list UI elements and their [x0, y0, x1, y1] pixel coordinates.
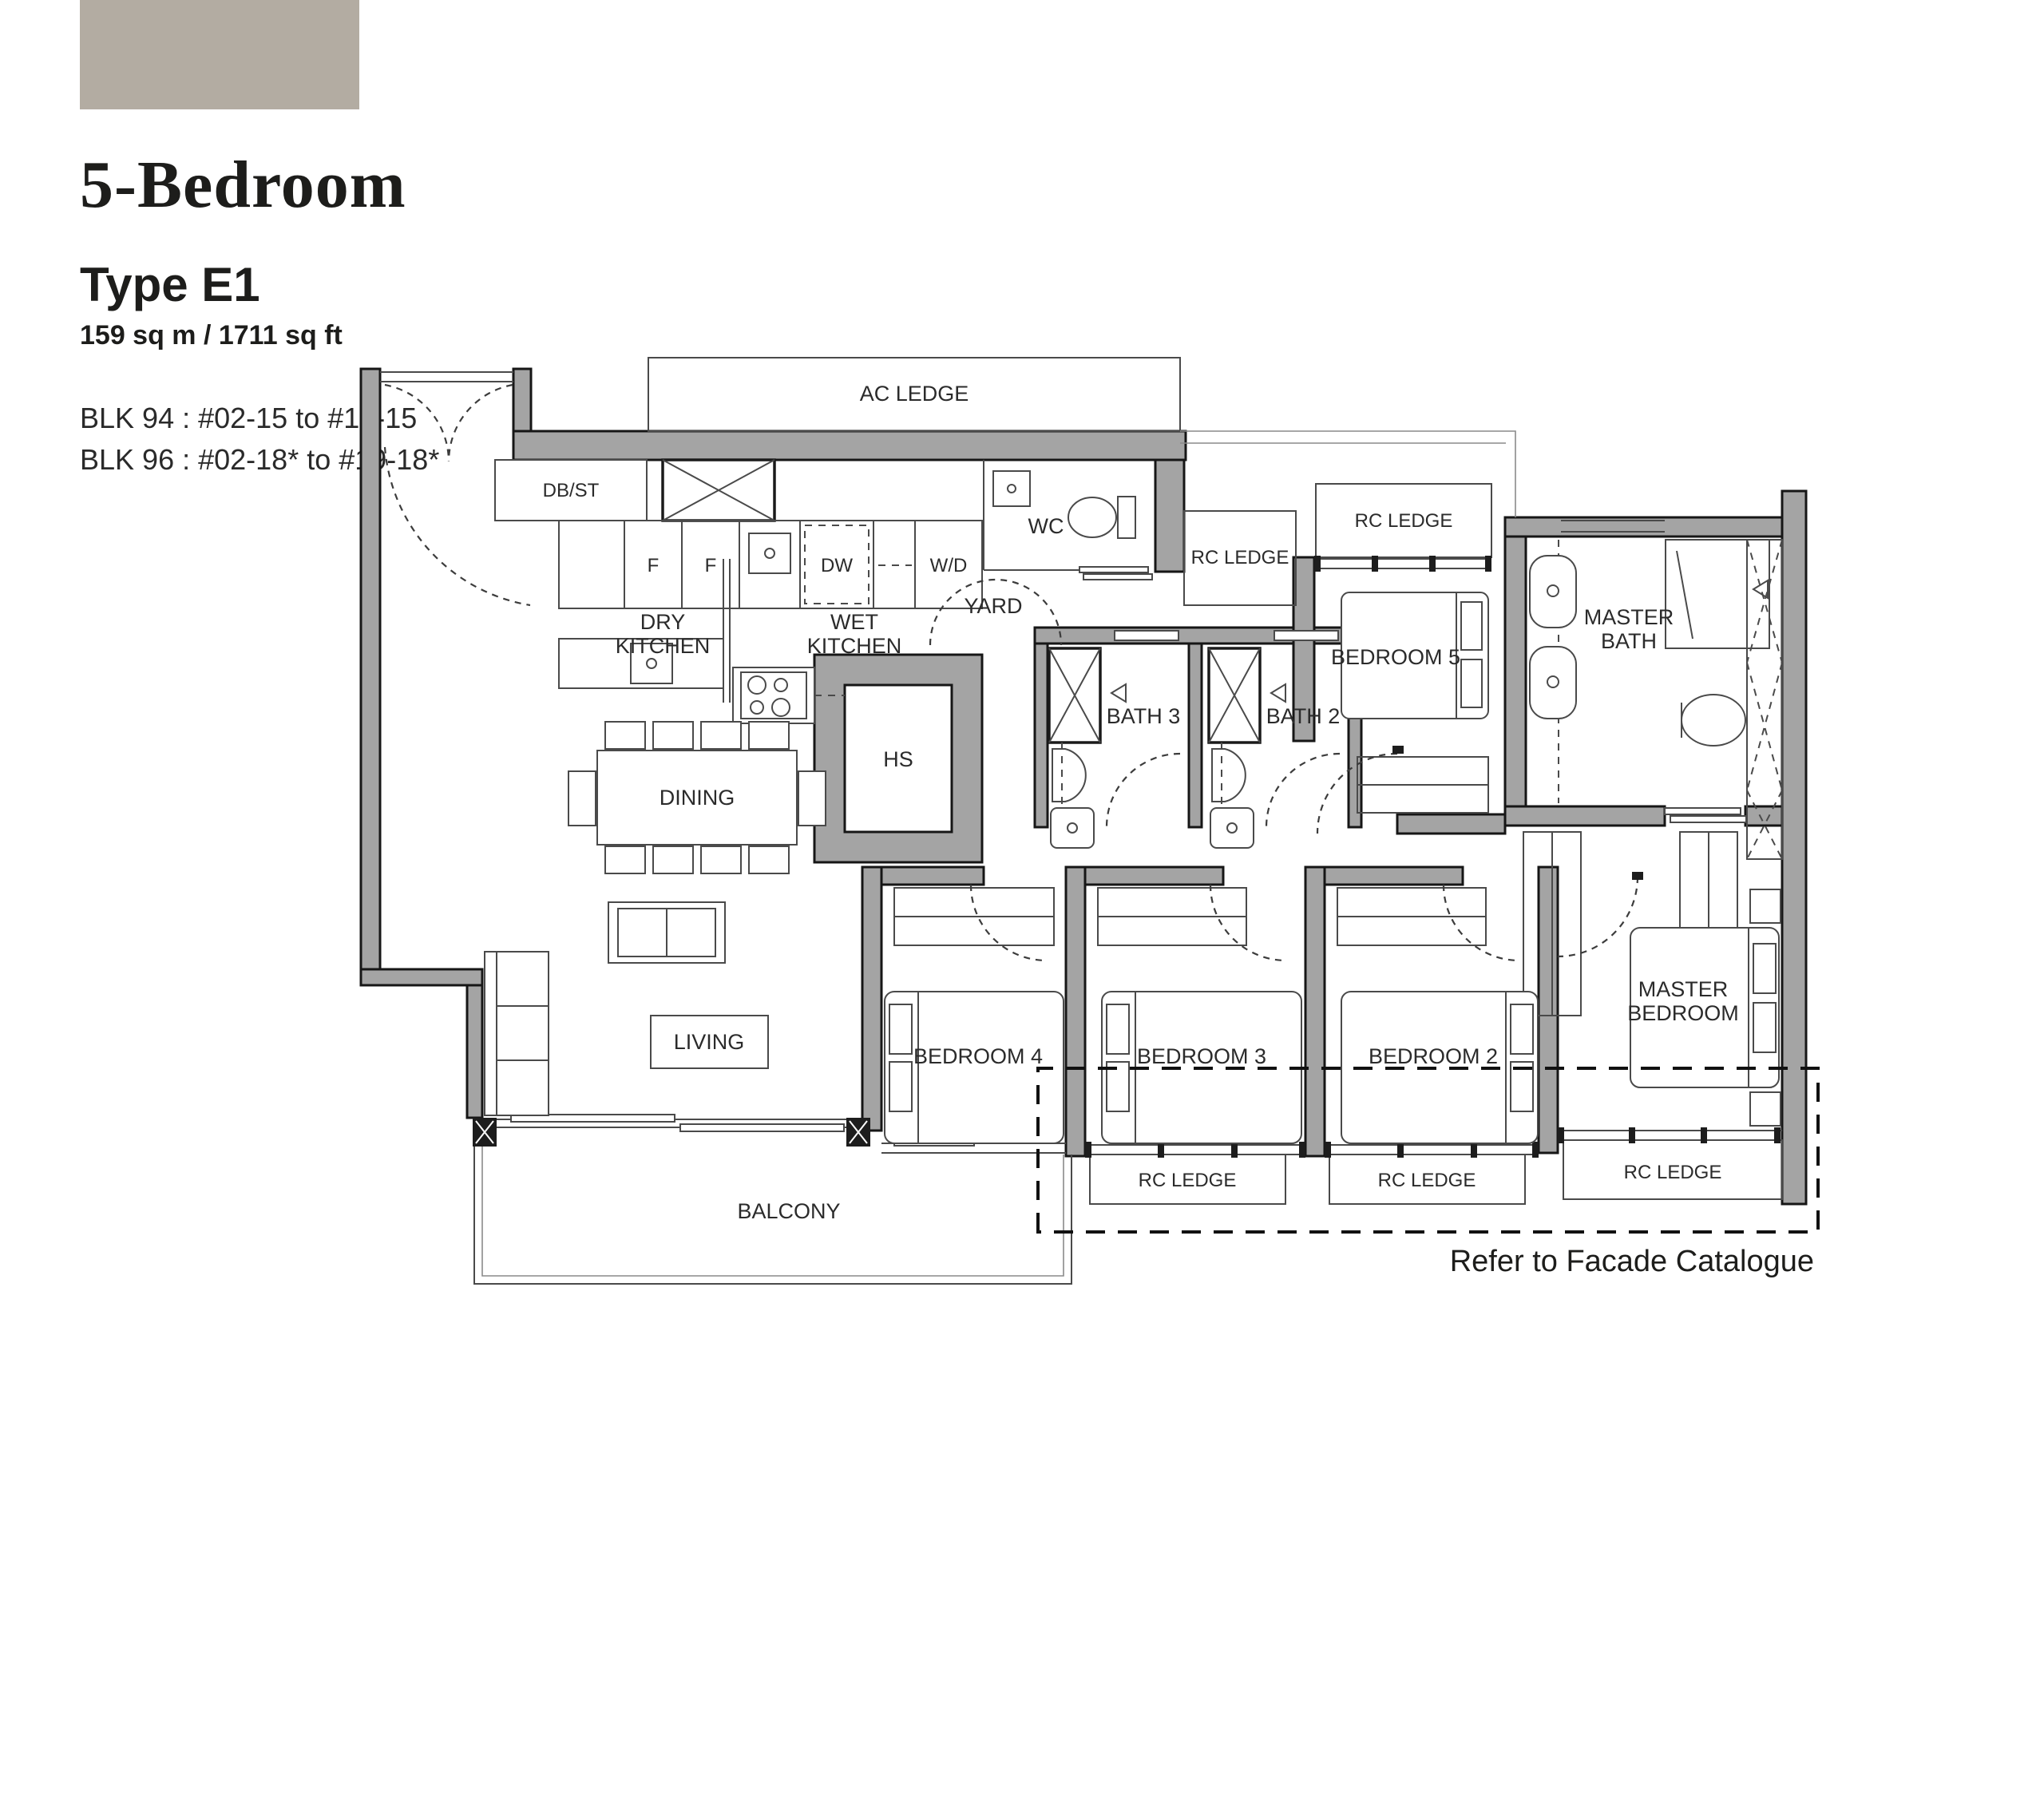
- label-ac-ledge: AC LEDGE: [860, 382, 969, 406]
- label-rc-ledge-wc: RC LEDGE: [1191, 547, 1289, 568]
- label-rc-ledge-master: RC LEDGE: [1624, 1162, 1722, 1183]
- label-dry-kitchen-2: KITCHEN: [616, 634, 711, 658]
- label-balcony: BALCONY: [737, 1199, 840, 1223]
- label-rc-ledge-bed2: RC LEDGE: [1378, 1170, 1476, 1191]
- facade-note: Refer to Facade Catalogue: [1450, 1245, 1814, 1278]
- label-bedroom-4: BEDROOM 4: [913, 1044, 1043, 1068]
- label-dining: DINING: [660, 786, 735, 810]
- label-master-bath-2: BATH: [1601, 629, 1657, 653]
- label-master-bath-1: MASTER: [1584, 605, 1674, 629]
- floor-plan: AC LEDGE DB/ST F F DW W/D WC DRY KITCHEN…: [0, 0, 2044, 1806]
- label-rc-ledge-bed3: RC LEDGE: [1139, 1170, 1237, 1191]
- sofa: [485, 952, 549, 1115]
- label-living: LIVING: [674, 1030, 745, 1054]
- wc-fixtures: [984, 460, 1152, 580]
- label-bedroom-2: BEDROOM 2: [1369, 1044, 1498, 1068]
- label-wet-kitchen-1: WET: [830, 610, 878, 634]
- wardrobe-bedroom5: [1357, 757, 1488, 813]
- label-fridge-1: F: [648, 555, 660, 576]
- label-fridge-2: F: [705, 555, 717, 576]
- label-rc-ledge-bed5: RC LEDGE: [1355, 510, 1453, 532]
- label-yard: YARD: [964, 594, 1022, 618]
- label-master-bedroom-1: MASTER: [1638, 977, 1729, 1001]
- label-washer-dryer: W/D: [930, 555, 968, 576]
- label-household-shelter: HS: [883, 747, 913, 771]
- label-bedroom-5: BEDROOM 5: [1331, 645, 1460, 669]
- tv-console: [608, 902, 725, 963]
- living-dining-furniture: [485, 722, 826, 1115]
- label-dishwasher: DW: [821, 555, 853, 576]
- label-bedroom-3: BEDROOM 3: [1137, 1044, 1266, 1068]
- label-bath-2: BATH 2: [1266, 704, 1341, 728]
- label-wc: WC: [1028, 514, 1064, 538]
- label-db-st: DB/ST: [543, 480, 600, 501]
- wardrobe-master-a: [1523, 832, 1581, 1016]
- wardrobe-bedroom3: [1098, 888, 1246, 945]
- label-wet-kitchen-2: KITCHEN: [807, 634, 902, 658]
- wardrobe-bedroom2: [1337, 888, 1486, 945]
- label-bath-3: BATH 3: [1107, 704, 1181, 728]
- label-master-bedroom-2: BEDROOM: [1627, 1001, 1739, 1025]
- wardrobe-bedroom4: [894, 888, 1054, 945]
- label-dry-kitchen-1: DRY: [640, 610, 686, 634]
